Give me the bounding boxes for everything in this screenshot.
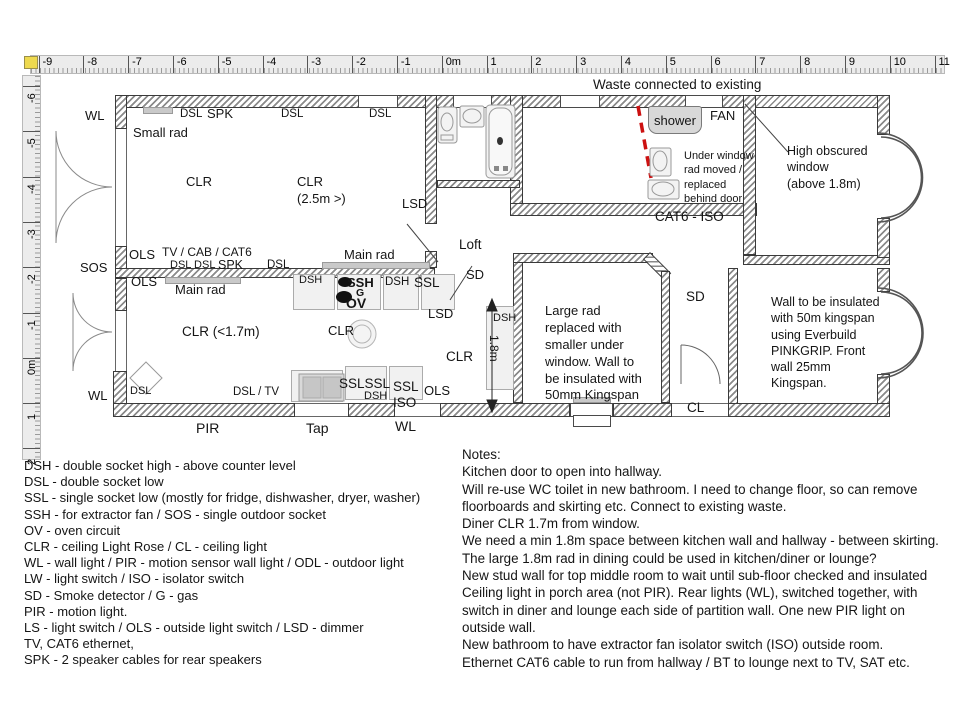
- legend-line: SSL - single socket low (mostly for frid…: [24, 490, 420, 506]
- bay-window-top: [878, 133, 923, 222]
- lounge-door-line: [407, 224, 438, 262]
- legend-line: SSH - for extractor fan / SOS - single o…: [24, 507, 420, 523]
- note-line: New stud wall for top middle room to wai…: [462, 567, 939, 584]
- french-doors-bottom: [73, 293, 112, 371]
- legend: DSH - double socket high - above counter…: [24, 458, 420, 669]
- note-line: outside wall.: [462, 619, 939, 636]
- note-line: The large 1.8m rad in dining could be us…: [462, 550, 939, 567]
- bay-window-bottom: [878, 288, 923, 378]
- note-line: Will re-use WC toilet in new bathroom. I…: [462, 481, 939, 498]
- note-line: Ceiling light in porch area (not PIR). R…: [462, 584, 939, 601]
- note-line: Notes:: [462, 446, 939, 463]
- legend-line: DSL - double socket low: [24, 474, 420, 490]
- dsl-diamond-icon: [130, 362, 162, 394]
- legend-line: OV - oven circuit: [24, 523, 420, 539]
- legend-line: SPK - 2 speaker cables for rear speakers: [24, 652, 420, 668]
- moved-basin-icon: [650, 148, 671, 176]
- hall-door-swing: [681, 345, 720, 384]
- dimension-arrow-1-8m: [487, 299, 497, 412]
- kitchen-door-line: [450, 266, 472, 300]
- basin-icon: [460, 106, 484, 127]
- note-line: Ethernet CAT6 cable to run from hallway …: [462, 654, 939, 671]
- fan-window-leader-line: [745, 104, 788, 152]
- floor-plan-page: { "rulers": { "horizontal": {"ticks": ["…: [0, 0, 960, 720]
- new-stud-wall-dashed-line: [638, 106, 651, 178]
- note-line: Kitchen door to open into hallway.: [462, 463, 939, 480]
- note-line: New bathroom to have extractor fan isola…: [462, 636, 939, 653]
- kitchen-sink-icon: [299, 374, 344, 401]
- legend-line: LS - light switch / OLS - outside light …: [24, 620, 420, 636]
- legend-line: TV, CAT6 ethernet,: [24, 636, 420, 652]
- legend-line: DSH - double socket high - above counter…: [24, 458, 420, 474]
- legend-line: PIR - motion light.: [24, 604, 420, 620]
- oven-hob-icon: [336, 277, 352, 303]
- legend-line: LW - light switch / ISO - isolator switc…: [24, 571, 420, 587]
- bathtub-icon: [486, 105, 515, 178]
- legend-line: WL - wall light / PIR - motion sensor wa…: [24, 555, 420, 571]
- note-line: We need a min 1.8m space between kitchen…: [462, 532, 939, 549]
- toilet-icon: [438, 107, 457, 143]
- ceiling-light-icon: [348, 320, 376, 348]
- legend-line: CLR - ceiling Light Rose / CL - ceiling …: [24, 539, 420, 555]
- notes: Notes:Kitchen door to open into hallway.…: [462, 446, 939, 671]
- note-line: floorboards and skirting etc. Connect to…: [462, 498, 939, 515]
- moved-rad-icon: [648, 180, 679, 199]
- note-line: Diner CLR 1.7m from window.: [462, 515, 939, 532]
- legend-line: SD - Smoke detector / G - gas: [24, 588, 420, 604]
- french-doors-top: [56, 131, 112, 243]
- note-line: switch in diner and lounge each side of …: [462, 602, 939, 619]
